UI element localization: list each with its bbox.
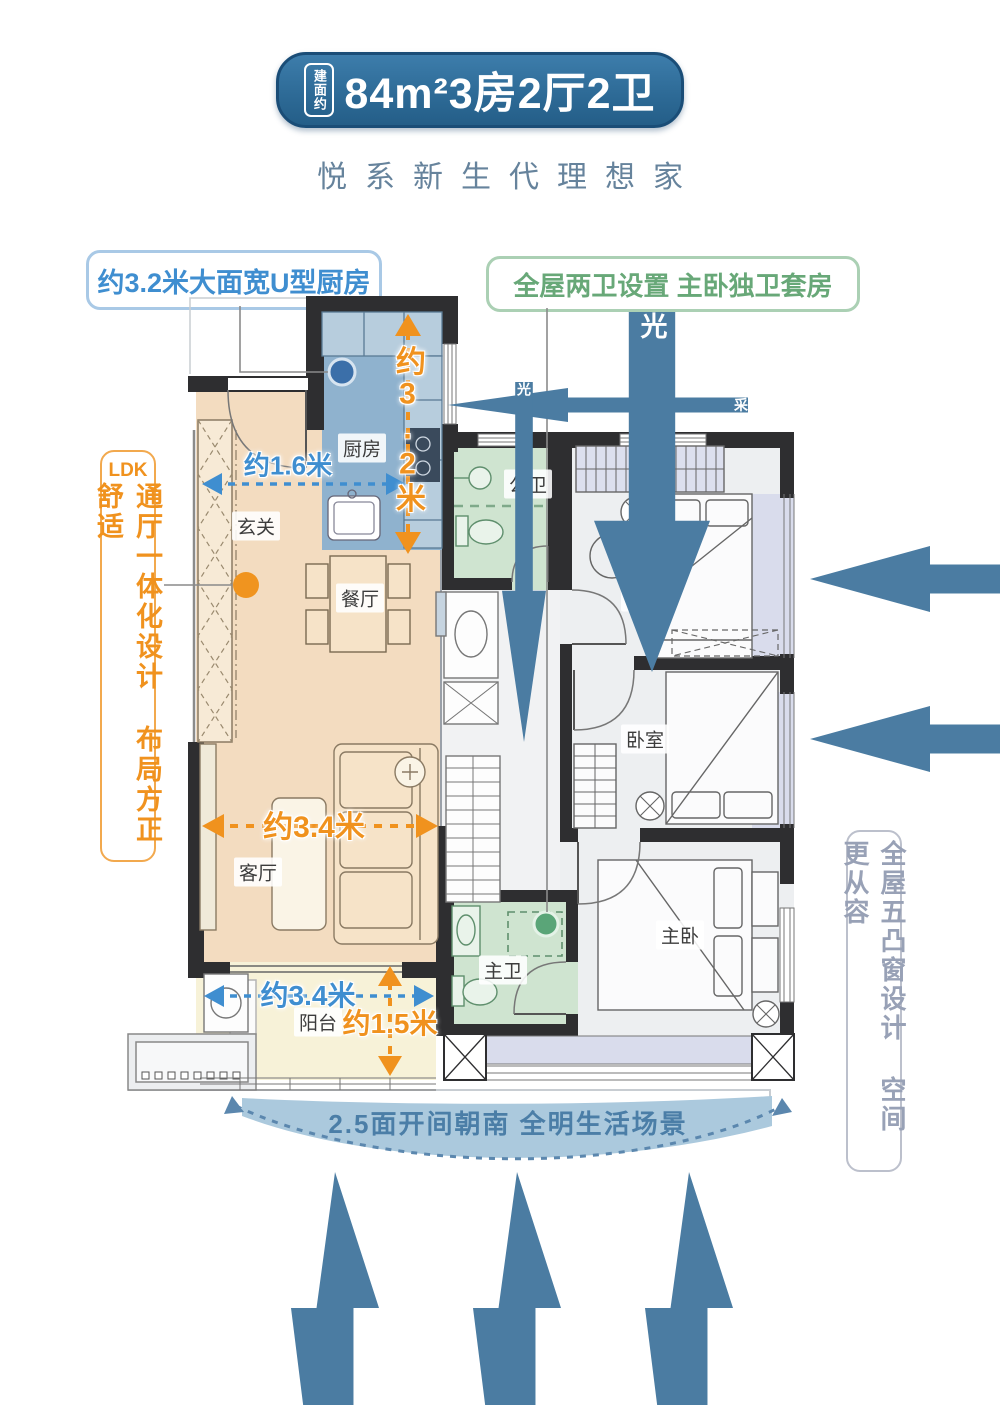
dim-kitchen-depth: 约3.2米 xyxy=(385,346,429,515)
room-label-dining: 餐厅 xyxy=(336,584,384,613)
dim-living-width: 约3.4米 xyxy=(263,802,365,846)
south-facing-caption: 2.5面开间朝南 全明生活场景 xyxy=(258,1104,758,1141)
floor-plan xyxy=(0,0,1000,1405)
room-label-living: 客厅 xyxy=(234,858,282,887)
ldk-callout-dot xyxy=(233,572,259,598)
room-label-master-bedroom: 主卧 xyxy=(656,921,704,950)
dim-foyer-width: 约1.6米 xyxy=(244,446,332,483)
room-label-master-bath: 主卫 xyxy=(479,956,527,985)
floorplan-poster: 建面约 84m²3房2厅2卫 悦系新生代理想家 约3.2米大面宽U型厨房 全屋两… xyxy=(0,0,1000,1405)
room-label-foyer: 玄关 xyxy=(232,512,280,541)
balcony-items xyxy=(204,974,248,1032)
dim-balcony-depth: 约1.5米 xyxy=(343,1002,438,1042)
room-label-bedroom-b: 卧室 xyxy=(621,725,669,754)
room-label-kitchen: 厨房 xyxy=(338,434,386,463)
dim-balcony-width: 约3.4米 xyxy=(261,974,356,1014)
kitchen-callout-dot xyxy=(329,359,355,385)
bath-callout-dot xyxy=(534,912,558,936)
foyer-closet xyxy=(198,420,236,742)
